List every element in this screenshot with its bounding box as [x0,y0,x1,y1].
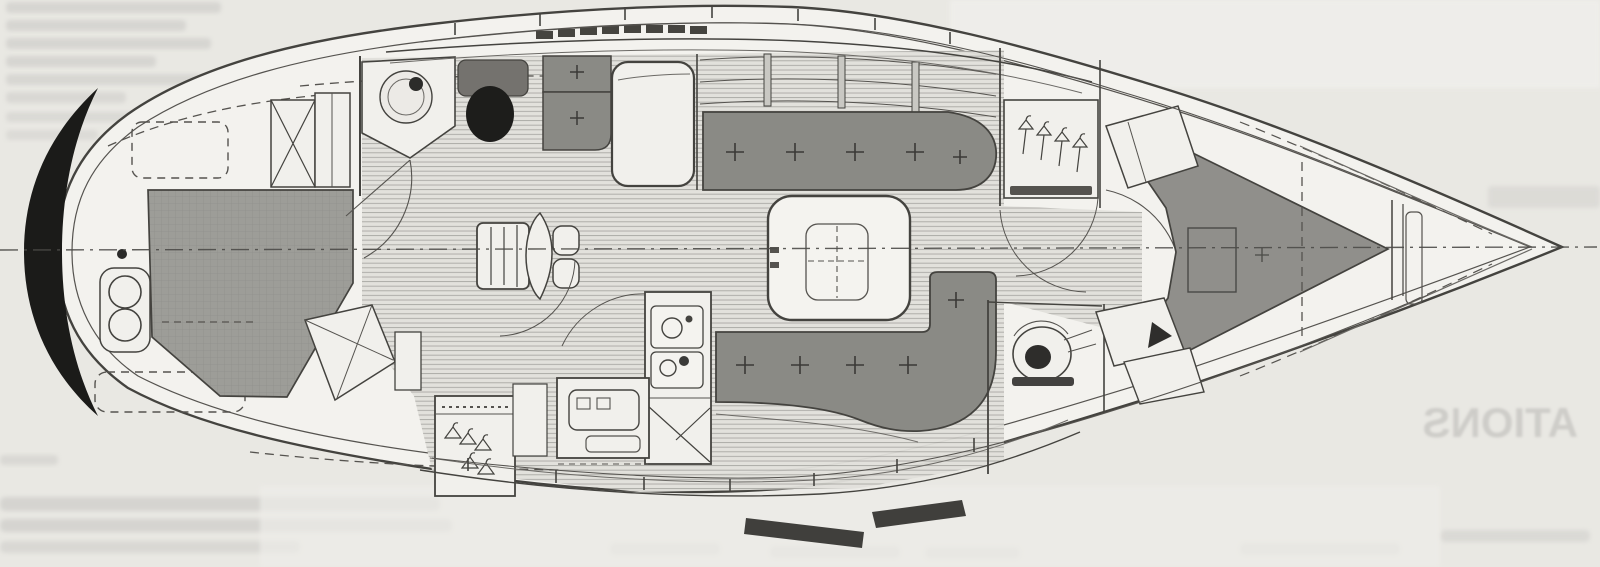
ghost-smudge [6,38,211,49]
table-clasp [770,262,779,268]
hanging-locker [1004,100,1098,198]
saloon-shelf-post [912,62,919,114]
aft-head-faucet [409,77,423,91]
rudder-stock-dot [117,249,127,259]
galley-faucet-dot [679,356,689,366]
saloon-table [768,196,910,320]
forward-toilet-base-bar [1012,377,1074,386]
ghost-smudge [6,20,186,31]
galley-side-locker [513,384,547,456]
ghost-smudge [6,56,156,67]
forward-toilet-drain [1025,345,1051,369]
plan-layer: ATIONS [0,0,1600,567]
saloon-shelf-post [764,54,771,106]
aft-cabin-step [395,332,421,390]
hanging-locker-shelf [1010,186,1092,195]
gas-bottle-locker [100,268,150,352]
paper-light-area [260,486,1440,567]
ghost-smudge [0,455,58,465]
ghost-smudge [6,74,201,85]
ghost-band [1488,186,1600,208]
scanned-page: Scanned monochrome interior arrangement … [0,0,1600,567]
saloon-shelf-post [838,56,845,108]
ghost-smudge [0,541,300,553]
ghost-smudge [6,92,126,103]
ghost-smudge [6,130,98,140]
aft-head-toilet [466,86,514,142]
ghost-smudge [6,2,221,13]
plan-svg: ATIONS [0,0,1600,567]
galley-faucet-dot [686,316,693,323]
ghost-mirrored-word: ATIONS [1422,399,1578,446]
ghost-smudge [1440,530,1590,542]
saloon-settee-port [703,112,996,190]
companionway-steps [477,223,529,289]
mast-section [553,226,579,255]
galley-sink-unit [651,306,703,348]
chart-table [612,62,694,186]
galley-sink-unit [651,352,703,388]
